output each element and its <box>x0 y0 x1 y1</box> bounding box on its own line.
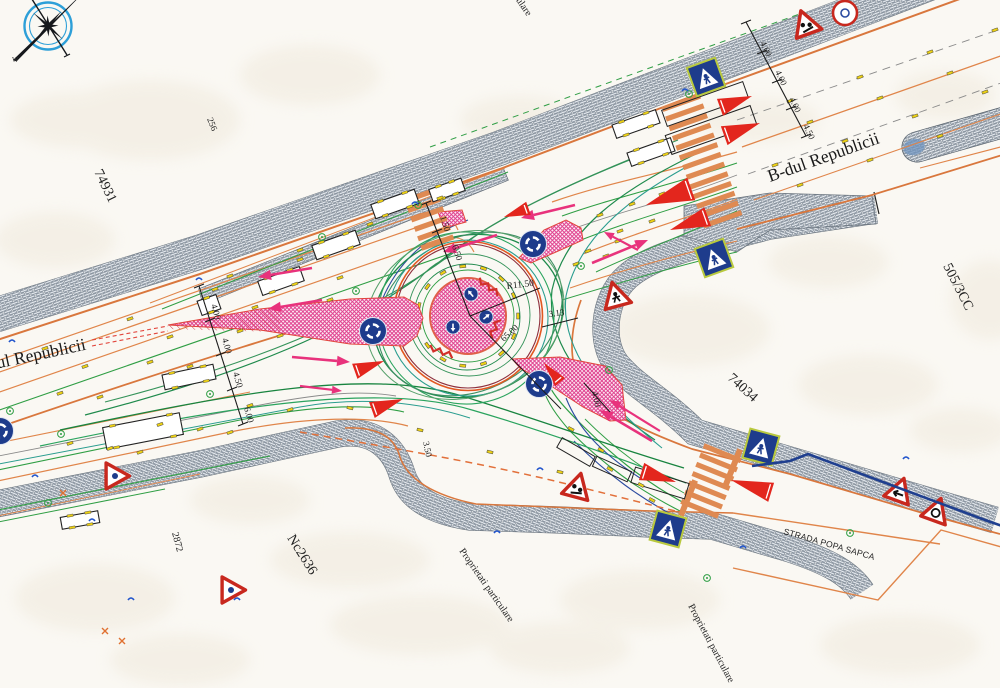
svg-text:W: W <box>12 56 19 64</box>
svg-text:3.13: 3.13 <box>548 307 565 319</box>
